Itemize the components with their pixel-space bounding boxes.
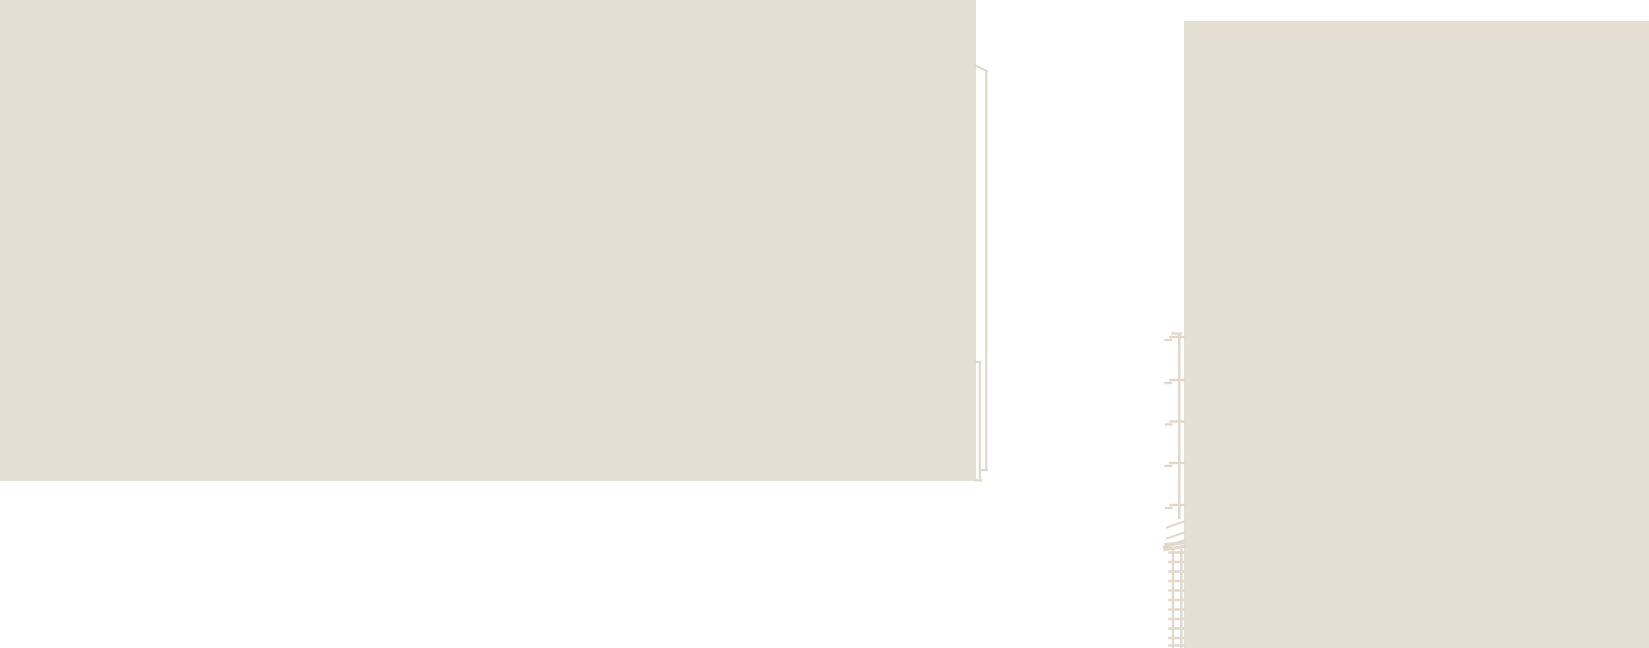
left-image-placeholder [0, 0, 976, 481]
page-canvas [0, 0, 1649, 648]
scene-graphics [0, 0, 1649, 648]
coil-slanted-turns [1167, 522, 1184, 539]
right-image-placeholder [1184, 21, 1649, 648]
coil-ladder [1170, 550, 1185, 647]
coil-scribble-knot [1165, 541, 1185, 550]
coil-line-art [1165, 334, 1185, 647]
coil-mast-and-ticks [1166, 334, 1185, 519]
stacked-card-edges [975, 66, 987, 481]
